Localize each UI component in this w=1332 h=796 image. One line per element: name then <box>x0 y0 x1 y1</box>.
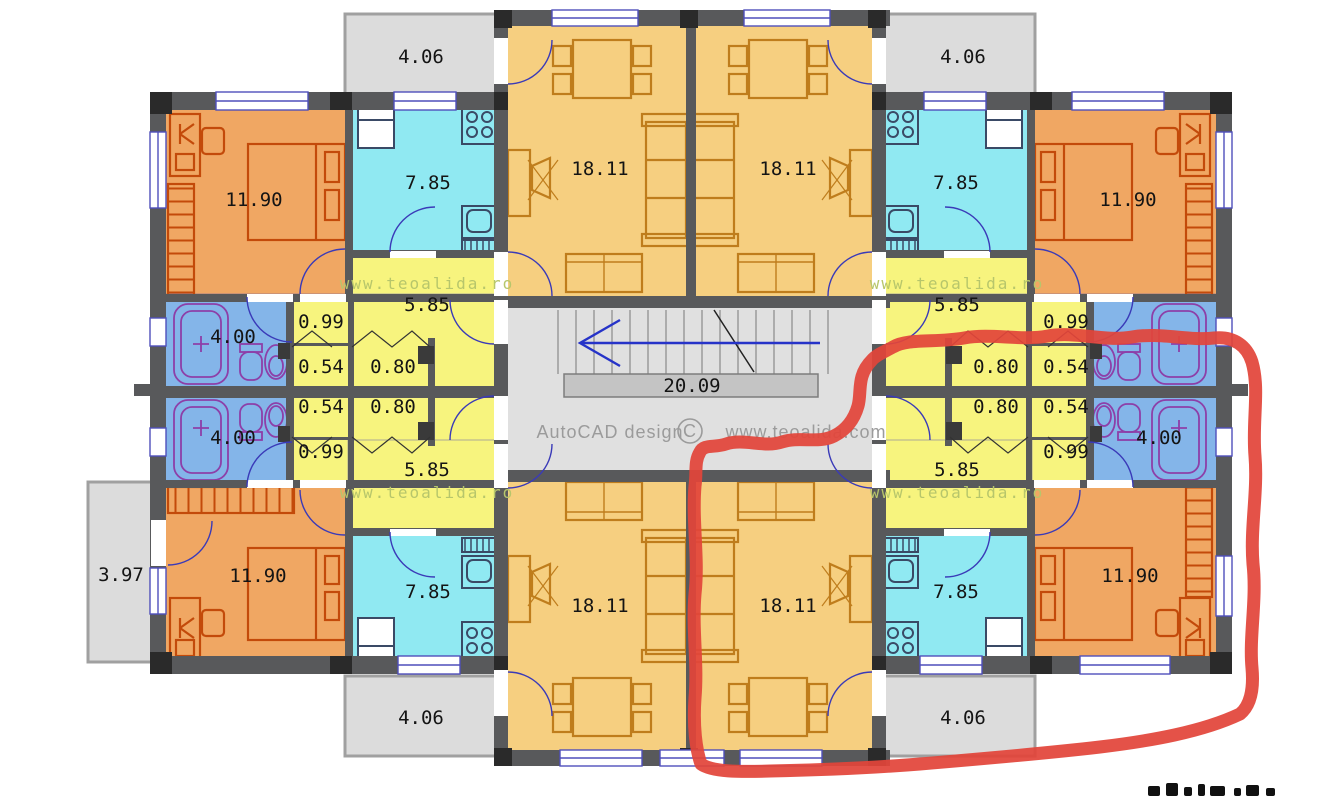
area-label-kitchen-bottom-left: 7.85 <box>405 581 451 603</box>
area-label-bath-top-left: 4.00 <box>210 326 256 348</box>
area-label-closet054-bottom-right: 0.54 <box>1043 396 1089 418</box>
area-label-hall-bottom-right: 5.85 <box>934 459 980 481</box>
area-label-kitchen-bottom-right: 7.85 <box>933 581 979 603</box>
area-label-balcony-top-right: 4.06 <box>940 46 986 68</box>
watermark-hall-bottom-left: www.teoalida.ro <box>340 483 515 502</box>
area-label-living-top-right: 18.11 <box>759 158 816 180</box>
area-label-living-bottom-right: 18.11 <box>759 595 816 617</box>
area-label-balcony-bottom-right: 4.06 <box>940 707 986 729</box>
area-label-bath-bottom-right: 4.00 <box>1136 427 1182 449</box>
area-label-kitchen-top-right: 7.85 <box>933 172 979 194</box>
area-label-kitchen-top-left: 7.85 <box>405 172 451 194</box>
area-label-stairs: 20.09 <box>663 375 720 397</box>
area-label-bedroom-bottom-left: 11.90 <box>229 565 286 587</box>
area-label-balcony-bottom-left: 4.06 <box>398 707 444 729</box>
watermark-hall-bottom-right: www.teoalida.ro <box>870 483 1045 502</box>
area-label-bath-bottom-left: 4.00 <box>210 427 256 449</box>
area-label-closet054-bottom-left: 0.54 <box>298 396 344 418</box>
area-label-hall-top-left: 5.85 <box>404 294 450 316</box>
area-label-living-bottom-left: 18.11 <box>571 595 628 617</box>
area-label-bedroom-top-left: 11.90 <box>225 189 282 211</box>
area-label-closet099-bottom-left: 0.99 <box>298 441 344 463</box>
floor-plan-page: 4.06 4.06 11.90 7.85 18.11 18.11 7.85 11… <box>0 0 1332 796</box>
area-label-closet099-top-left: 0.99 <box>298 311 344 333</box>
watermark-hall-top-left: www.teoalida.ro <box>340 274 515 293</box>
area-label-living-top-left: 18.11 <box>571 158 628 180</box>
area-label-closet080-bottom-right: 0.80 <box>973 396 1019 418</box>
area-label-balcony-left: 3.97 <box>98 564 144 586</box>
area-label-balcony-top-left: 4.06 <box>398 46 444 68</box>
area-label-closet054-top-left: 0.54 <box>298 356 344 378</box>
area-label-bedroom-bottom-right: 11.90 <box>1101 565 1158 587</box>
area-label-bedroom-top-right: 11.90 <box>1099 189 1156 211</box>
area-label-closet080-top-right: 0.80 <box>973 356 1019 378</box>
copyright-letter: C <box>683 421 697 441</box>
area-label-hall-top-right: 5.85 <box>934 294 980 316</box>
watermark-hall-top-right: www.teoalida.ro <box>870 274 1045 293</box>
area-label-closet054-top-right: 0.54 <box>1043 356 1089 378</box>
area-label-closet080-bottom-left: 0.80 <box>370 396 416 418</box>
area-label-hall-bottom-left: 5.85 <box>404 459 450 481</box>
floor-plan-canvas: 4.06 4.06 11.90 7.85 18.11 18.11 7.85 11… <box>0 0 1332 796</box>
cutoff-text-fragment <box>1148 783 1275 796</box>
credit-text: AutoCAD design <box>536 422 683 442</box>
area-label-closet099-bottom-right: 0.99 <box>1043 441 1089 463</box>
area-label-closet080-top-left: 0.80 <box>370 356 416 378</box>
